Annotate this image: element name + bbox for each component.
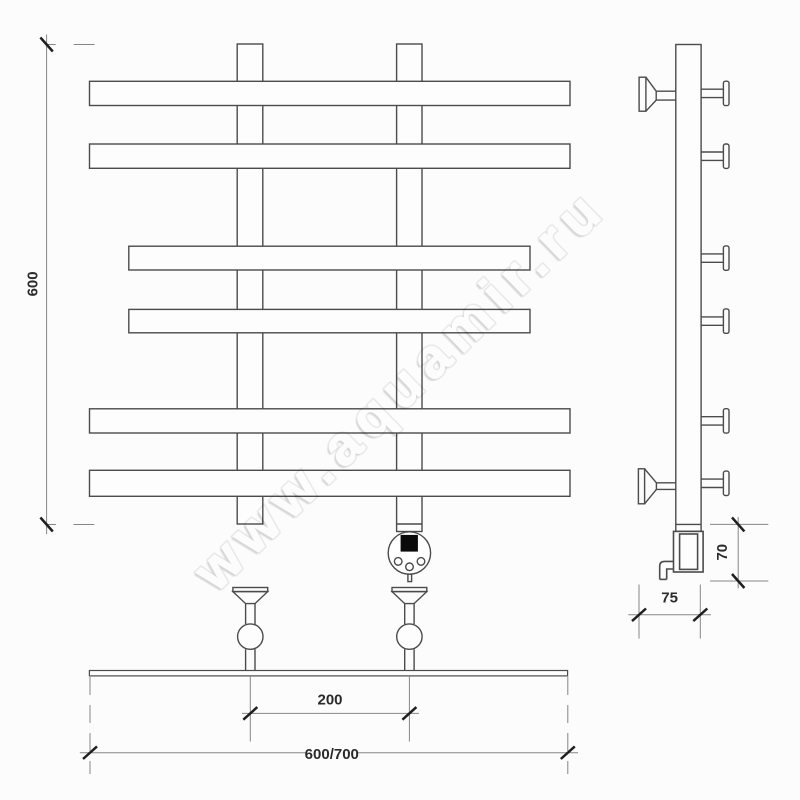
svg-text:75: 75 [661, 589, 678, 606]
svg-text:600: 600 [25, 271, 42, 296]
svg-text:70: 70 [714, 544, 731, 561]
svg-text:200: 200 [317, 692, 342, 709]
svg-text:600/700: 600/700 [305, 746, 359, 763]
